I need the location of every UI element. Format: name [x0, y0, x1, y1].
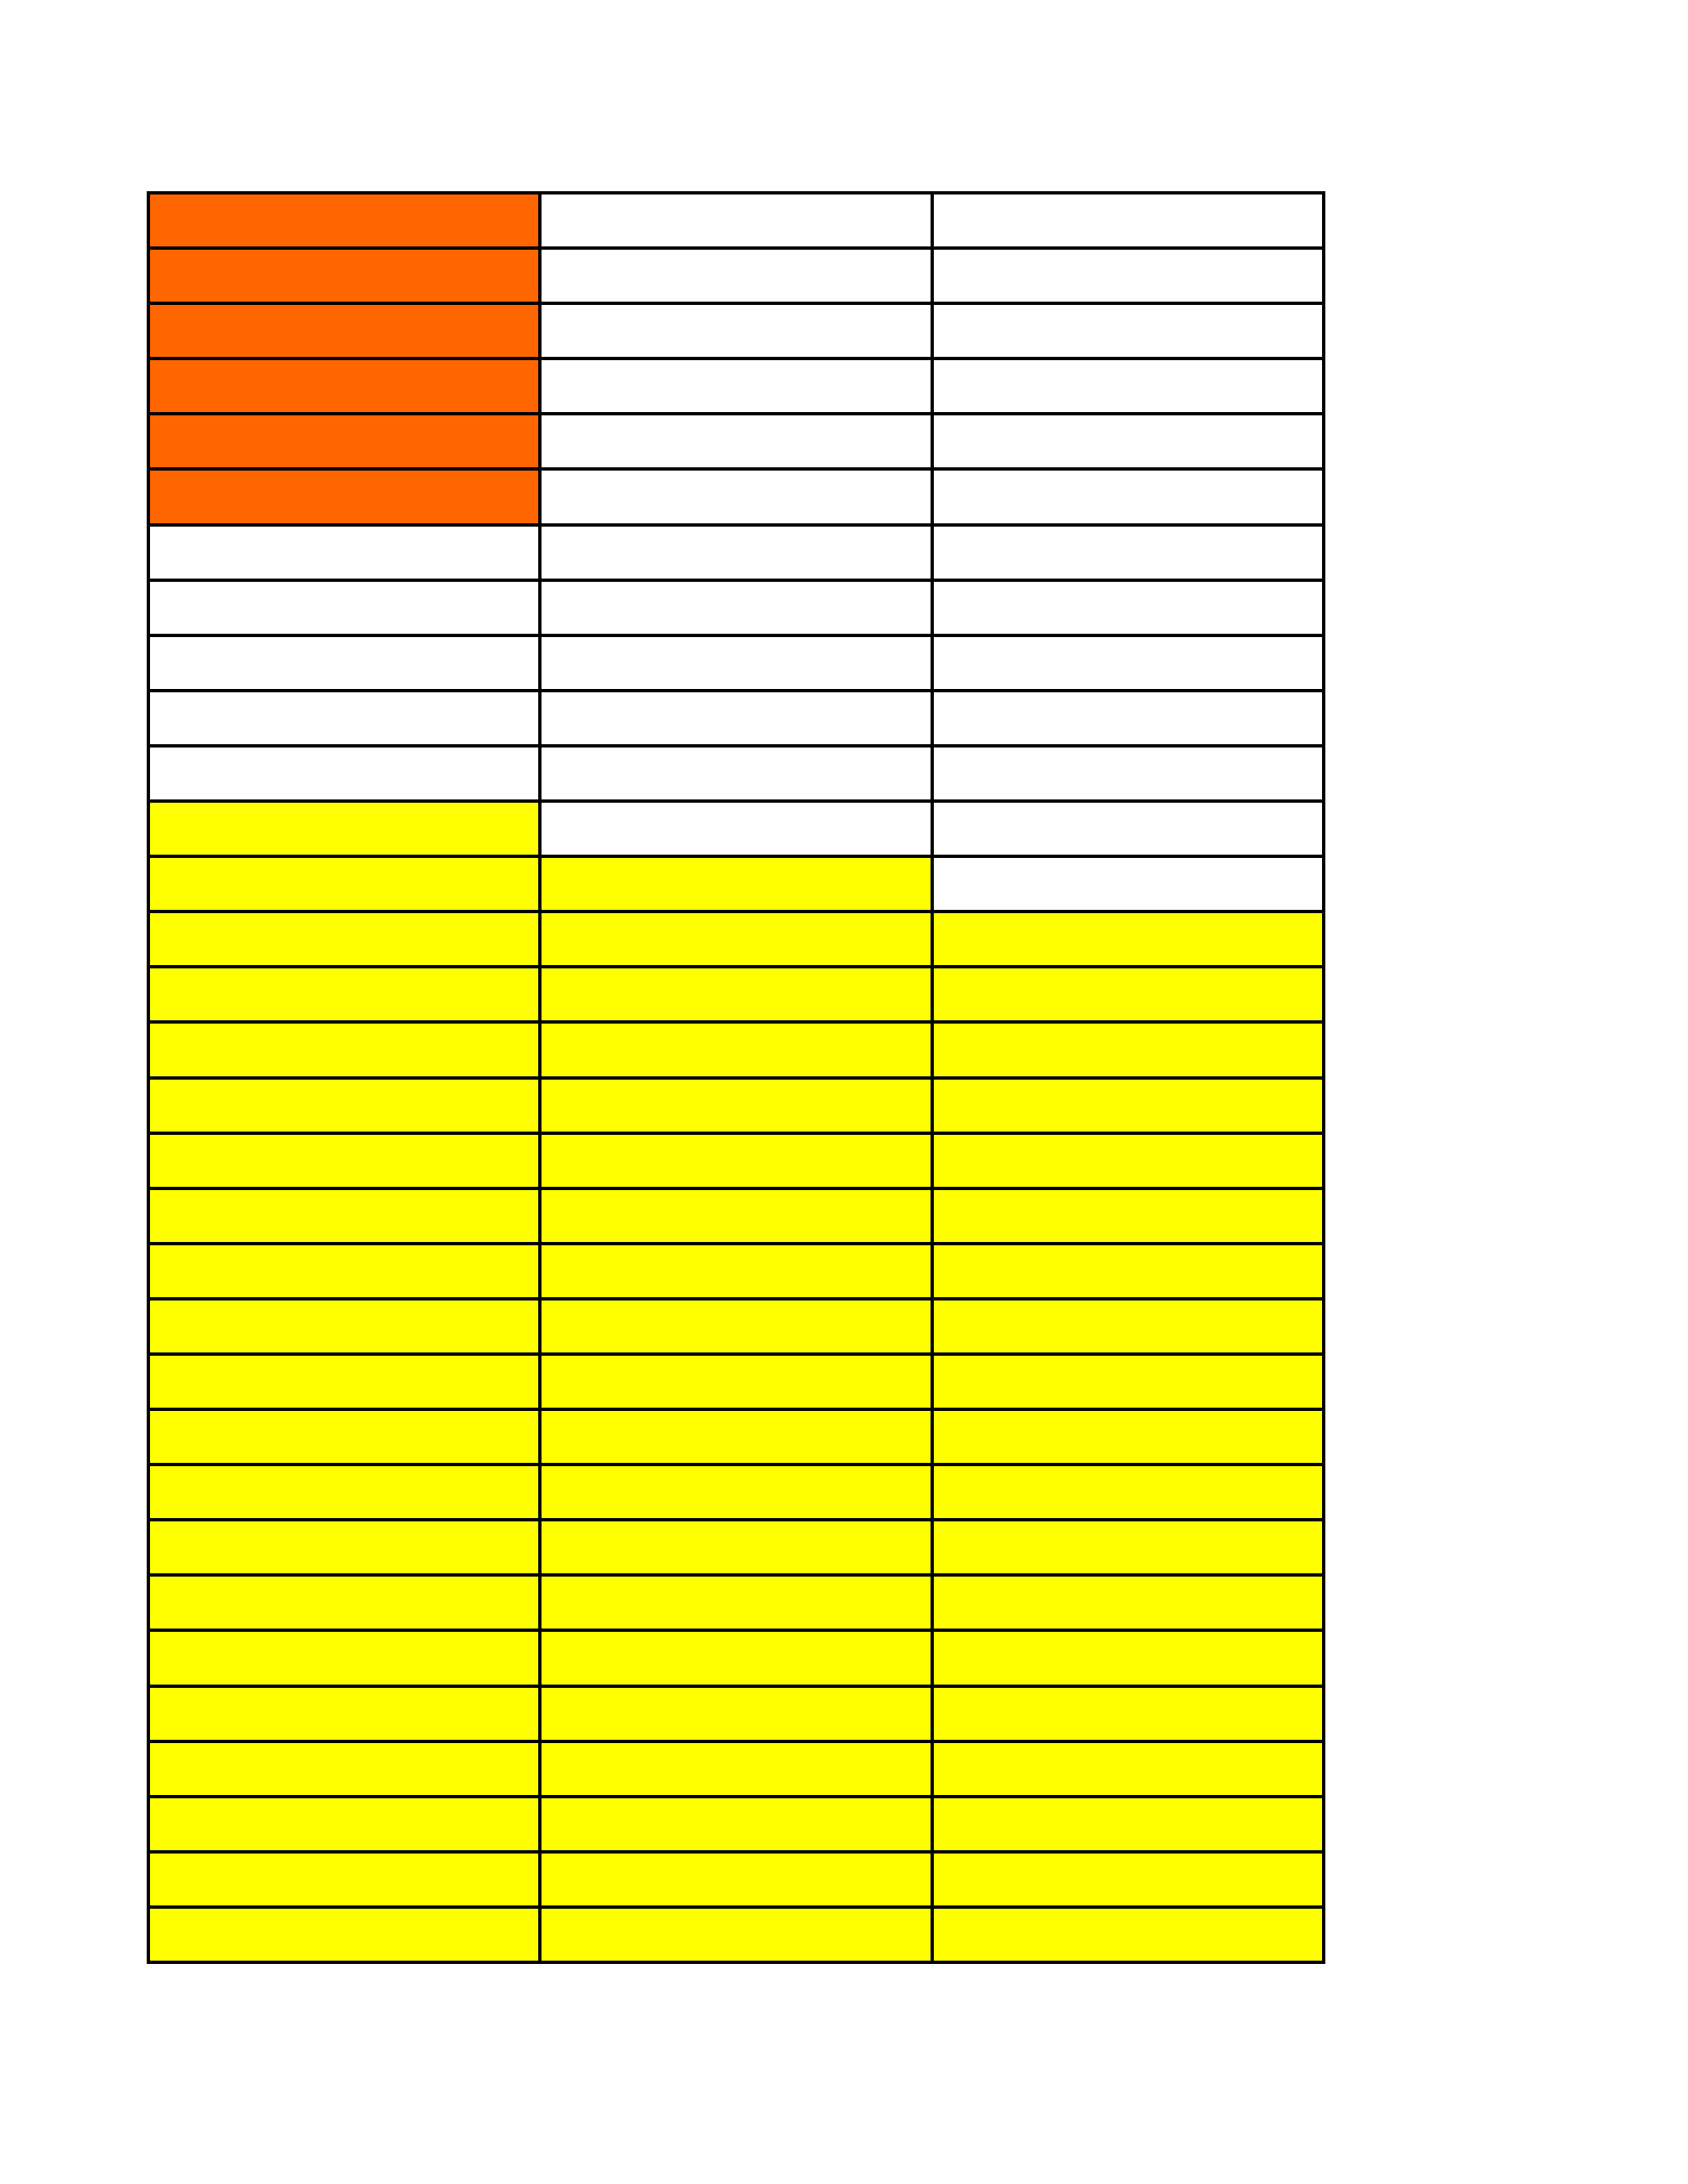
table-row — [148, 1188, 1324, 1244]
table-row — [148, 1630, 1324, 1685]
table-cell — [148, 525, 540, 580]
table-row — [148, 635, 1324, 691]
table-row — [148, 1299, 1324, 1354]
table-row — [148, 1797, 1324, 1852]
table-cell — [932, 1575, 1324, 1630]
table-cell — [932, 303, 1324, 359]
table-row — [148, 856, 1324, 912]
table-cell — [148, 1299, 540, 1354]
table-cell — [932, 1797, 1324, 1852]
table-cell — [540, 967, 931, 1022]
table-row — [148, 1354, 1324, 1409]
table-cell — [932, 967, 1324, 1022]
table-row — [148, 1907, 1324, 1962]
table-cell — [540, 801, 931, 856]
table-cell — [148, 691, 540, 746]
table-cell — [148, 1520, 540, 1575]
table-row — [148, 580, 1324, 635]
table-row — [148, 1686, 1324, 1741]
table-cell — [932, 248, 1324, 303]
table-cell — [540, 1907, 931, 1962]
sheet-canvas — [0, 0, 1688, 2184]
table-cell — [148, 1852, 540, 1907]
table-cell — [932, 801, 1324, 856]
table-row — [148, 414, 1324, 469]
table-cell — [148, 635, 540, 691]
table-cell — [148, 359, 540, 414]
table-cell — [148, 1741, 540, 1797]
table-cell — [540, 635, 931, 691]
table-row — [148, 691, 1324, 746]
table-cell — [932, 525, 1324, 580]
table-cell — [932, 1022, 1324, 1077]
table-row — [148, 303, 1324, 359]
table-cell — [540, 1797, 931, 1852]
table-cell — [540, 248, 931, 303]
table-row — [148, 746, 1324, 801]
table-row — [148, 1133, 1324, 1188]
table-cell — [932, 1133, 1324, 1188]
table-cell — [148, 1133, 540, 1188]
table-cell — [932, 1409, 1324, 1465]
table-cell — [540, 525, 931, 580]
table-row — [148, 1022, 1324, 1077]
table-cell — [540, 1299, 931, 1354]
table-row — [148, 469, 1324, 524]
table-cell — [148, 1686, 540, 1741]
table-cell — [932, 1188, 1324, 1244]
table-cell — [540, 691, 931, 746]
table-row — [148, 359, 1324, 414]
table-row — [148, 1520, 1324, 1575]
table-cell — [148, 1409, 540, 1465]
table-cell — [148, 1630, 540, 1685]
table-row — [148, 967, 1324, 1022]
table-cell — [148, 856, 540, 912]
table-cell — [540, 1465, 931, 1520]
table-cell — [540, 580, 931, 635]
table-cell — [932, 1520, 1324, 1575]
table-row — [148, 1244, 1324, 1299]
table-cell — [932, 1686, 1324, 1741]
table-row — [148, 1078, 1324, 1133]
table-cell — [932, 912, 1324, 967]
table-cell — [148, 1354, 540, 1409]
table-cell — [932, 414, 1324, 469]
table-row — [148, 1409, 1324, 1465]
table-cell — [540, 912, 931, 967]
table-cell — [540, 1852, 931, 1907]
table-cell — [540, 1244, 931, 1299]
table-cell — [148, 801, 540, 856]
table-row — [148, 1465, 1324, 1520]
table-cell — [932, 359, 1324, 414]
table-cell — [148, 469, 540, 524]
table-cell — [540, 303, 931, 359]
table-cell — [148, 1244, 540, 1299]
table-cell — [540, 1022, 931, 1077]
table-cell — [148, 1188, 540, 1244]
table-cell — [932, 691, 1324, 746]
spreadsheet-grid — [147, 191, 1325, 1964]
table-cell — [932, 1630, 1324, 1685]
table-cell — [932, 1465, 1324, 1520]
table-cell — [540, 746, 931, 801]
table-row — [148, 248, 1324, 303]
table-row — [148, 801, 1324, 856]
table-cell — [932, 580, 1324, 635]
table-cell — [540, 856, 931, 912]
table-cell — [540, 359, 931, 414]
table-cell — [932, 635, 1324, 691]
table-cell — [540, 469, 931, 524]
table-cell — [148, 1465, 540, 1520]
table-cell — [148, 967, 540, 1022]
table-cell — [932, 1741, 1324, 1797]
table-cell — [540, 1354, 931, 1409]
table-row — [148, 1741, 1324, 1797]
table-cell — [932, 1907, 1324, 1962]
table-cell — [148, 248, 540, 303]
table-cell — [148, 1022, 540, 1077]
table-cell — [932, 856, 1324, 912]
table-row — [148, 1575, 1324, 1630]
table-cell — [148, 746, 540, 801]
table-row — [148, 912, 1324, 967]
table-cell — [540, 193, 931, 248]
table-cell — [540, 1409, 931, 1465]
table-cell — [148, 580, 540, 635]
table-cell — [540, 1078, 931, 1133]
table-cell — [540, 1630, 931, 1685]
table-cell — [540, 1575, 931, 1630]
table-cell — [540, 1741, 931, 1797]
table-cell — [148, 303, 540, 359]
table-cell — [148, 1575, 540, 1630]
table-cell — [540, 414, 931, 469]
table-cell — [932, 469, 1324, 524]
table-cell — [148, 414, 540, 469]
table-cell — [148, 1907, 540, 1962]
table-row — [148, 1852, 1324, 1907]
table-cell — [148, 193, 540, 248]
table-cell — [540, 1188, 931, 1244]
table-cell — [932, 193, 1324, 248]
table-cell — [932, 1852, 1324, 1907]
table-cell — [148, 1078, 540, 1133]
table-cell — [932, 746, 1324, 801]
table-cell — [932, 1244, 1324, 1299]
table-cell — [932, 1354, 1324, 1409]
table-row — [148, 193, 1324, 248]
table-cell — [148, 912, 540, 967]
table-cell — [540, 1686, 931, 1741]
table-row — [148, 525, 1324, 580]
table-cell — [540, 1520, 931, 1575]
table-cell — [540, 1133, 931, 1188]
table-cell — [932, 1299, 1324, 1354]
table-cell — [932, 1078, 1324, 1133]
table-cell — [148, 1797, 540, 1852]
